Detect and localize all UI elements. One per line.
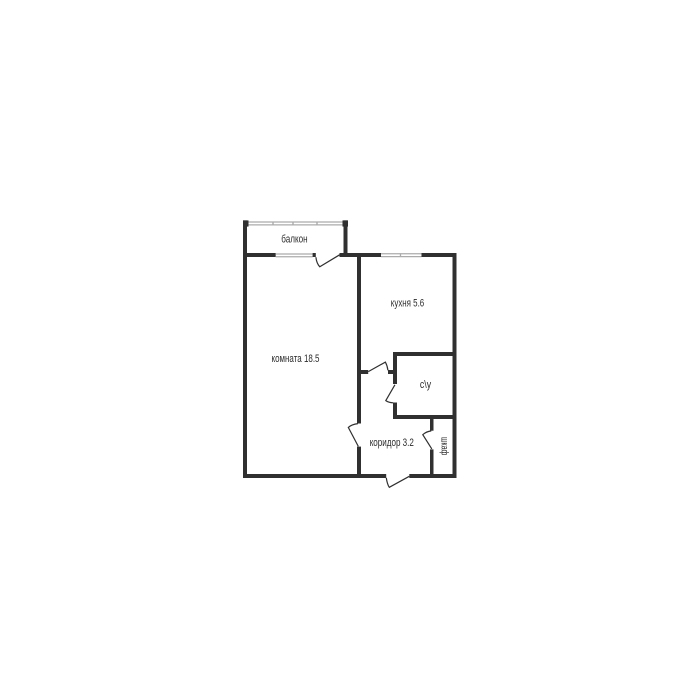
- svg-text:комната 18.5: комната 18.5: [272, 353, 320, 365]
- svg-text:балкон: балкон: [281, 234, 307, 246]
- svg-text:коридор 3.2: коридор 3.2: [370, 437, 414, 449]
- svg-text:кухня 5.6: кухня 5.6: [391, 297, 424, 309]
- svg-text:шкаф: шкаф: [439, 437, 451, 455]
- svg-text:с\у: с\у: [420, 379, 432, 391]
